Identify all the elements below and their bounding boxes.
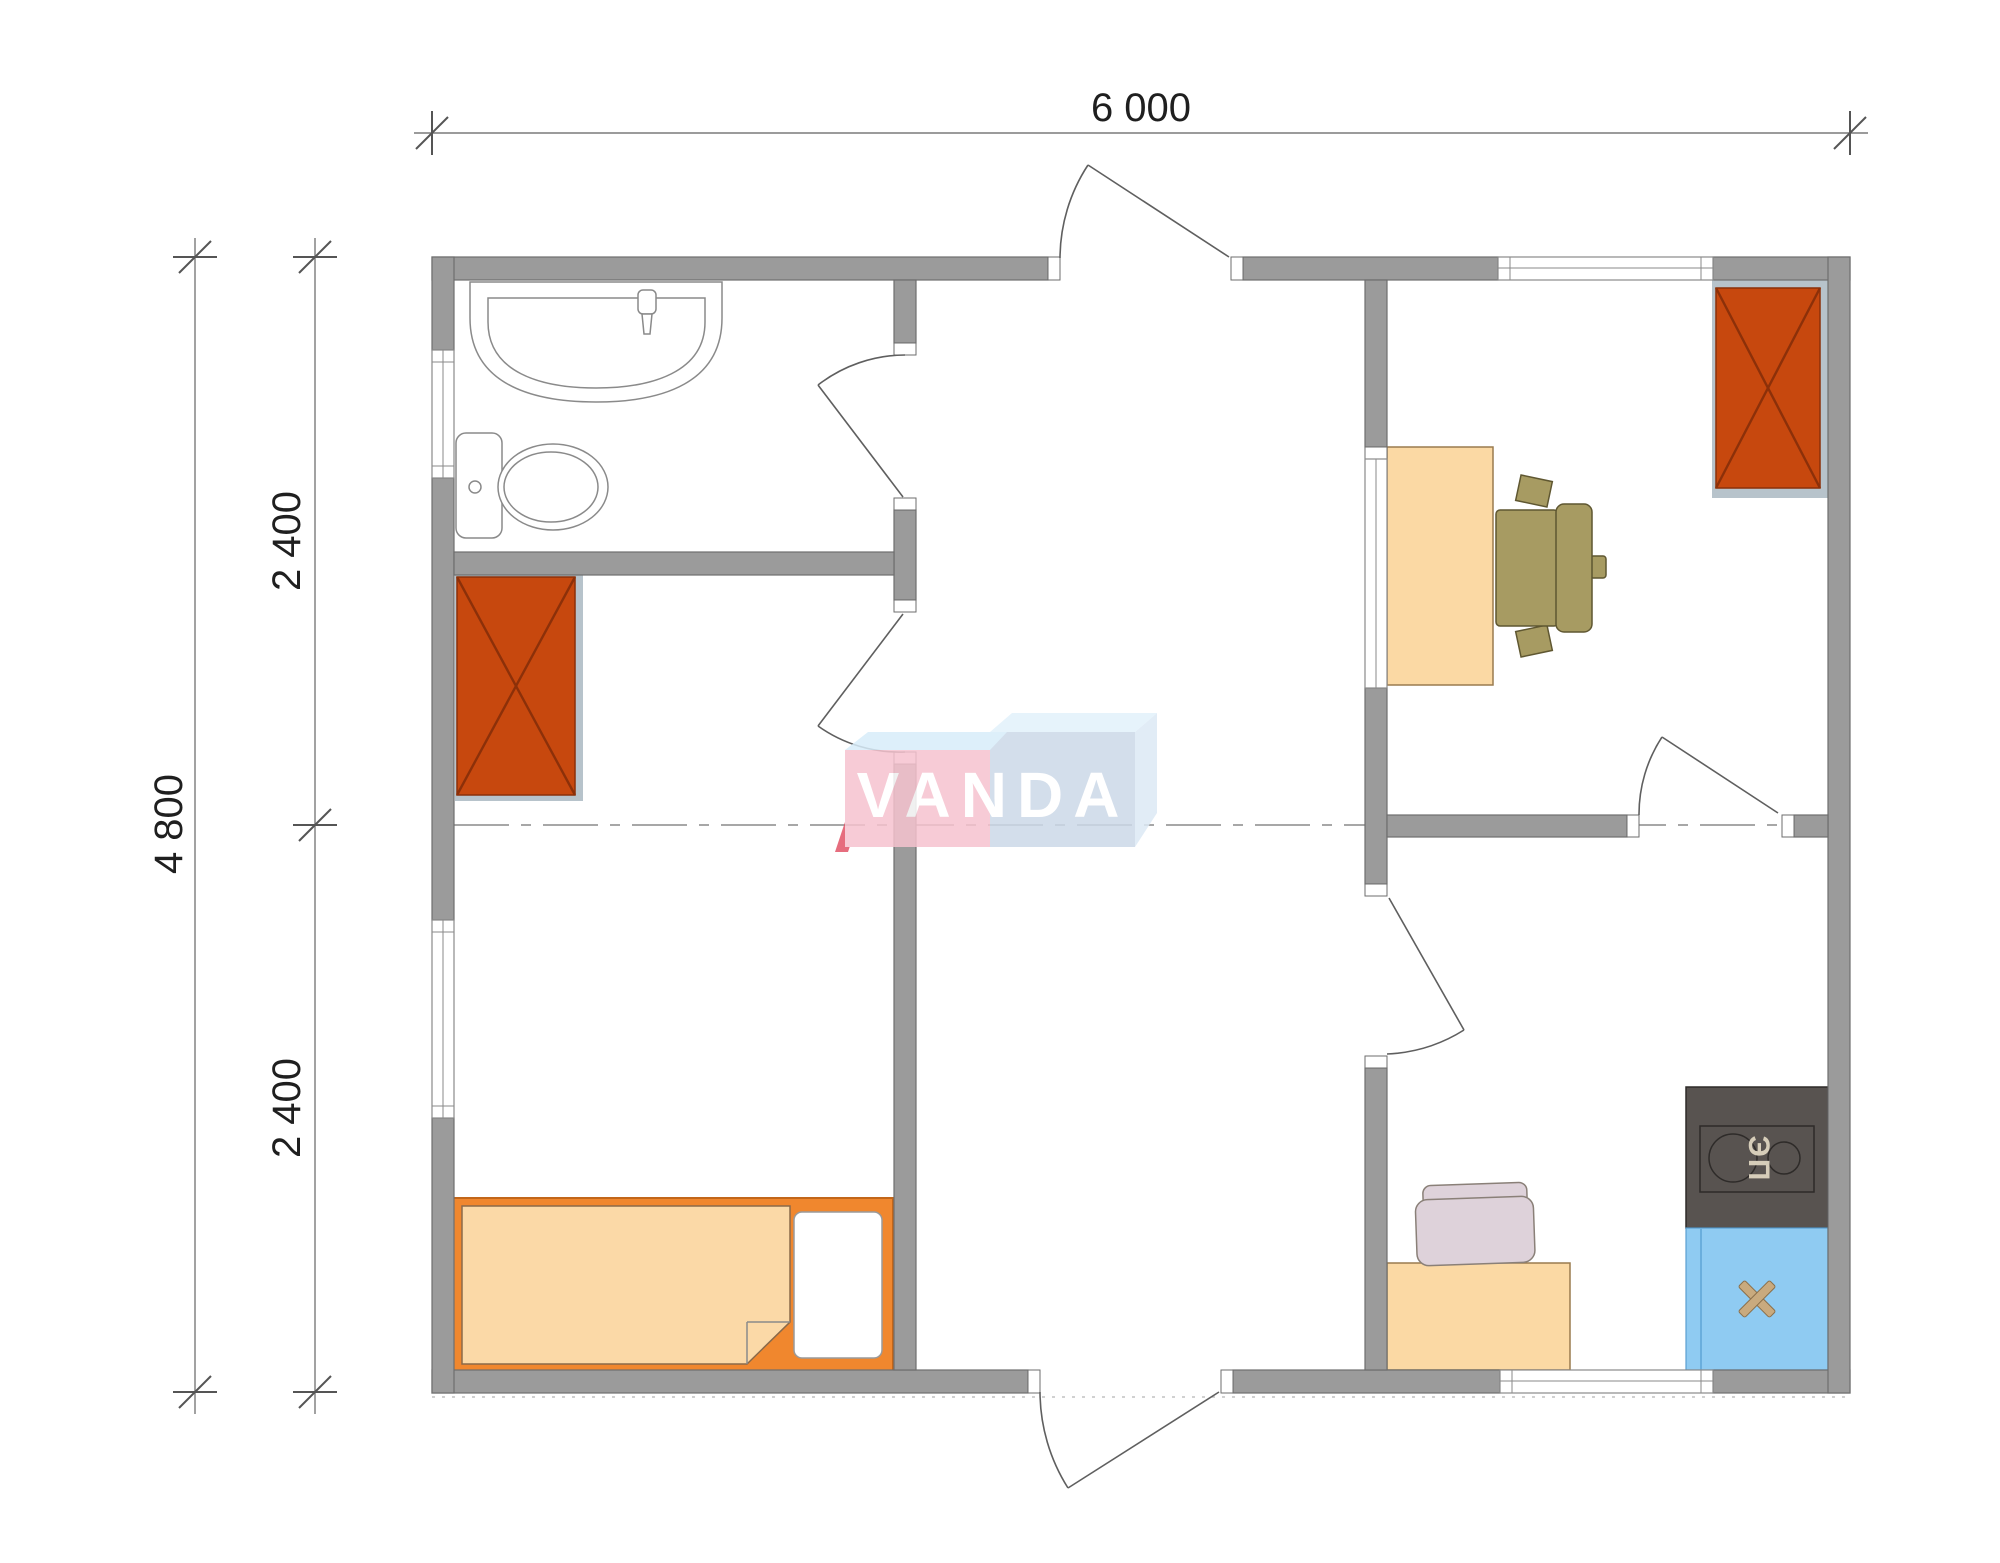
logo-text: VANDA <box>857 759 1130 831</box>
kitchen-sink <box>1686 1228 1828 1370</box>
wall-segment <box>432 1370 1028 1393</box>
chair-seat <box>1496 510 1558 626</box>
door-jamb <box>1221 1370 1233 1393</box>
wall-segment <box>1365 280 1387 447</box>
door-bedroom <box>818 614 905 752</box>
door-jamb <box>894 600 916 612</box>
wall-segment <box>454 552 894 575</box>
bed <box>453 1198 908 1372</box>
door-jamb <box>1231 257 1243 280</box>
door-exit-bottom <box>1040 1392 1219 1488</box>
door-bathroom <box>818 355 905 497</box>
wall-segment <box>1233 1370 1500 1393</box>
door-jamb <box>1627 815 1639 837</box>
door-kitchen <box>1387 898 1464 1054</box>
toilet-bowl <box>498 444 608 530</box>
door-office <box>1639 737 1778 815</box>
kitchen-chair <box>1415 1182 1536 1266</box>
dimension-label-upper-height: 2 400 <box>265 491 309 591</box>
wardrobe-right <box>1712 272 1828 498</box>
dimension-left-total-height: 4 800 <box>147 238 217 1414</box>
wall-segment <box>1794 815 1828 837</box>
vanda-watermark: VANDA <box>835 713 1157 852</box>
washbasin-faucet <box>638 290 656 314</box>
logo-box-top-face <box>990 713 1157 732</box>
logo-box-top-face <box>845 732 1007 750</box>
door-entrance-top <box>1060 165 1229 258</box>
door-jamb <box>894 343 916 355</box>
door-jamb <box>894 498 916 510</box>
logo-box-side-face <box>1135 713 1157 847</box>
office-chair <box>1496 475 1606 657</box>
wall-segment <box>432 257 454 350</box>
window-bottom-kitchen <box>1500 1370 1713 1393</box>
desk <box>1387 447 1493 685</box>
wall-segment <box>894 764 916 1370</box>
dimension-label-total-height: 4 800 <box>147 774 191 874</box>
door-jamb <box>1365 1056 1387 1068</box>
wall-segment <box>432 478 454 920</box>
wall-segment <box>432 1118 454 1393</box>
washbasin-outer <box>470 282 722 402</box>
wall-segment <box>432 257 1048 280</box>
dimension-top-width: 6 000 <box>414 86 1868 155</box>
window-left-bedroom <box>432 920 454 1118</box>
floor-plan-canvas: 6 000 4 800 2 400 2 400 <box>0 0 2000 1563</box>
wardrobe-left <box>455 569 583 801</box>
wall-segment <box>1243 257 1498 280</box>
kitchen-counter <box>1387 1263 1570 1370</box>
window-top-office <box>1498 257 1713 280</box>
chair-backrest <box>1556 504 1592 632</box>
wall-segment <box>894 510 916 600</box>
toilet <box>456 433 608 538</box>
chair-seat <box>1415 1196 1535 1266</box>
wall-segment <box>894 280 916 343</box>
electric-stove: ЭП <box>1686 1087 1828 1228</box>
door-jamb <box>1365 884 1387 896</box>
dimension-left-half-heights: 2 400 2 400 <box>265 238 337 1414</box>
door-jamb <box>1028 1370 1040 1393</box>
door-jamb <box>1782 815 1794 837</box>
chair-armrest <box>1516 475 1553 507</box>
wall-end-cap <box>1365 447 1387 459</box>
washbasin-spout <box>642 314 652 334</box>
door-jamb <box>1048 257 1060 280</box>
wall-segment <box>1365 688 1387 884</box>
wall-segment <box>1365 1068 1387 1370</box>
wall-segment <box>1387 815 1627 837</box>
chair-armrest <box>1516 625 1553 657</box>
dimension-label-lower-height: 2 400 <box>265 1058 309 1158</box>
window-interior-office <box>1365 459 1387 688</box>
toilet-flush-button <box>469 481 481 493</box>
wall-segment <box>1828 257 1850 1393</box>
dimension-label-total-width: 6 000 <box>1091 86 1191 130</box>
window-left-bathroom <box>432 350 454 478</box>
bed-mattress <box>462 1206 790 1364</box>
stove-label: ЭП <box>1742 1136 1775 1183</box>
bed-pillow <box>794 1212 882 1358</box>
